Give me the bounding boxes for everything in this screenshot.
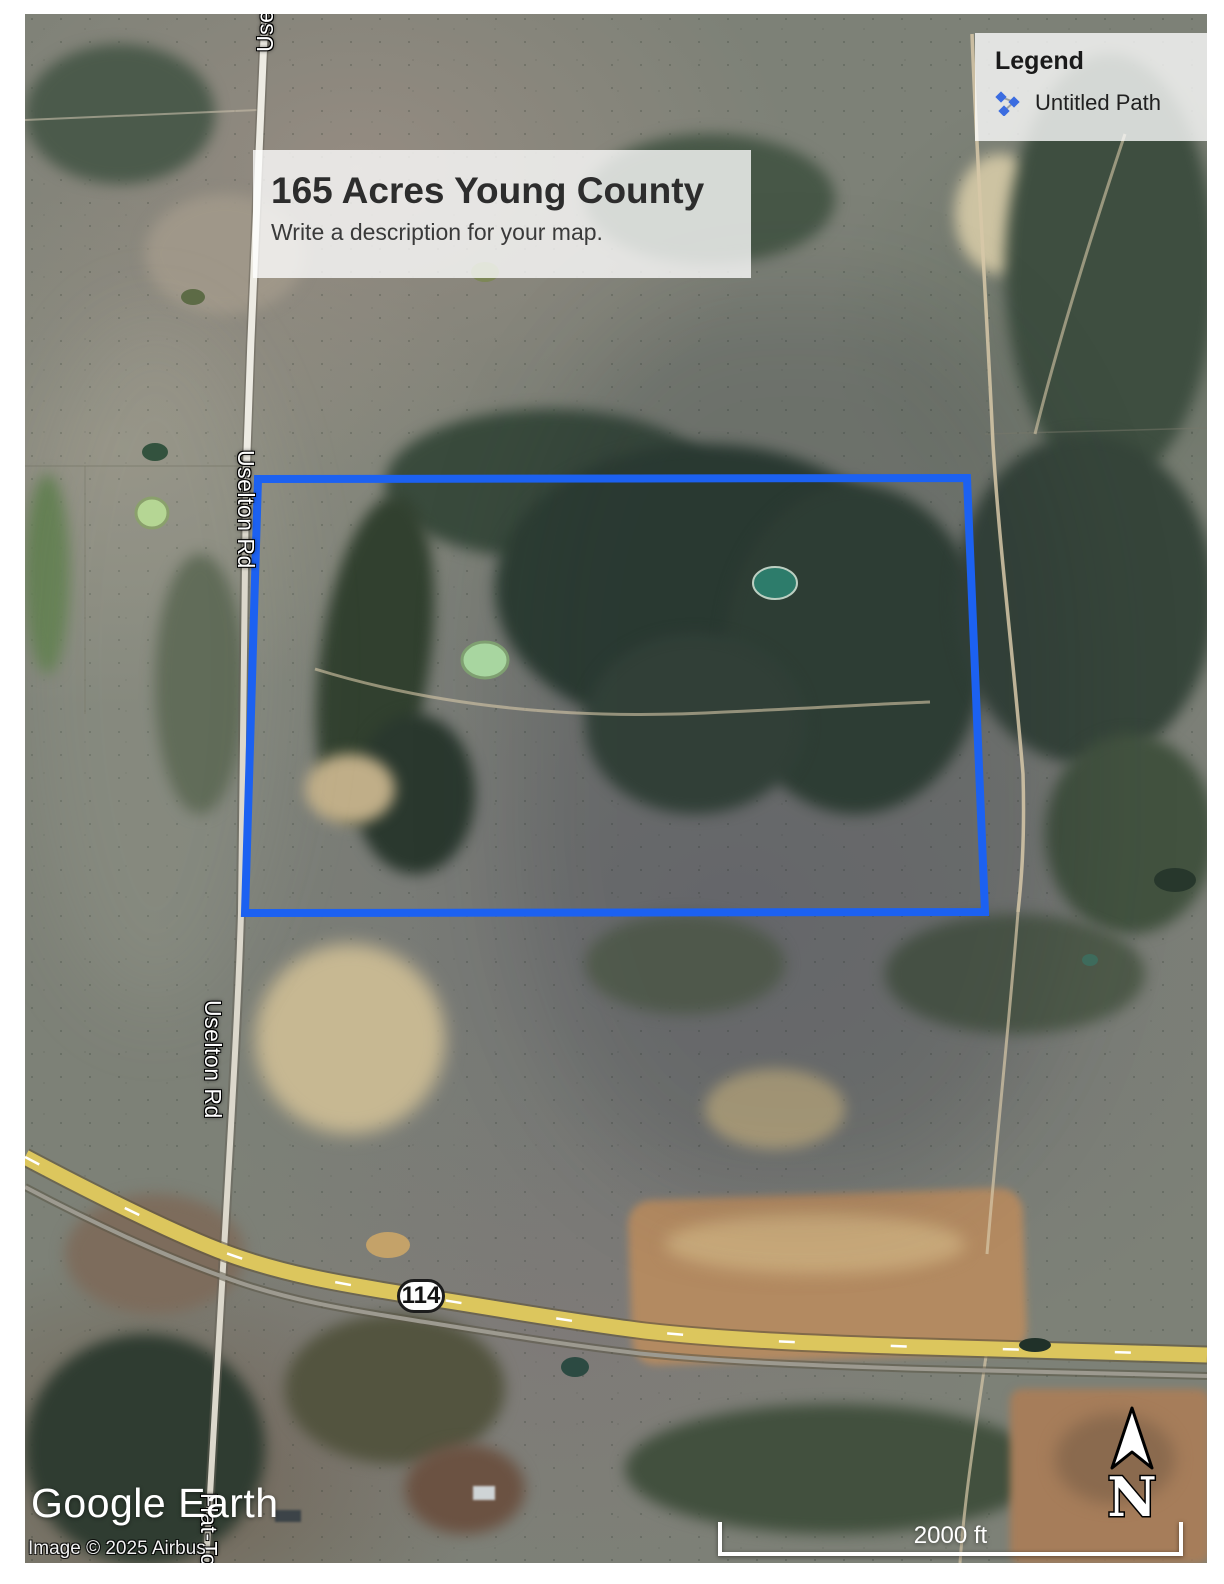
road-label-uselton-lower: Uselton Rd — [199, 1000, 226, 1119]
highway-114-shield: 114 — [397, 1279, 445, 1313]
north-letter: N — [1107, 1465, 1156, 1524]
map-canvas[interactable]: Uselton Rd Uselton Rd Uselton Rd Flat-To… — [25, 14, 1207, 1563]
scale-bar-label: 2000 ft — [914, 1522, 987, 1550]
legend-heading: Legend — [995, 47, 1207, 76]
path-icon — [995, 90, 1021, 116]
imagery-copyright: Image © 2025 Airbus — [28, 1538, 206, 1560]
road-label-uselton-upper: Uselton Rd — [232, 450, 259, 569]
property-boundary-path[interactable] — [245, 478, 985, 913]
map-description[interactable]: Write a description for your map. — [271, 219, 733, 246]
map-title: 165 Acres Young County — [271, 170, 733, 213]
google-earth-logo: Google Earth — [31, 1480, 279, 1527]
highway-114-number: 114 — [402, 1282, 441, 1310]
north-arrow: N — [1100, 1406, 1165, 1524]
map-title-box: 165 Acres Young County Write a descripti… — [253, 150, 751, 278]
legend-box: Legend Untitled Path — [975, 33, 1207, 141]
scale-bar: 2000 ft — [718, 1522, 1183, 1556]
legend-item-untitled-path[interactable]: Untitled Path — [995, 90, 1207, 116]
google-earth-map-export: Uselton Rd Uselton Rd Uselton Rd Flat-To… — [0, 0, 1224, 1584]
legend-item-label: Untitled Path — [1035, 90, 1161, 116]
road-label-uselton-top: Uselton Rd — [252, 14, 279, 52]
